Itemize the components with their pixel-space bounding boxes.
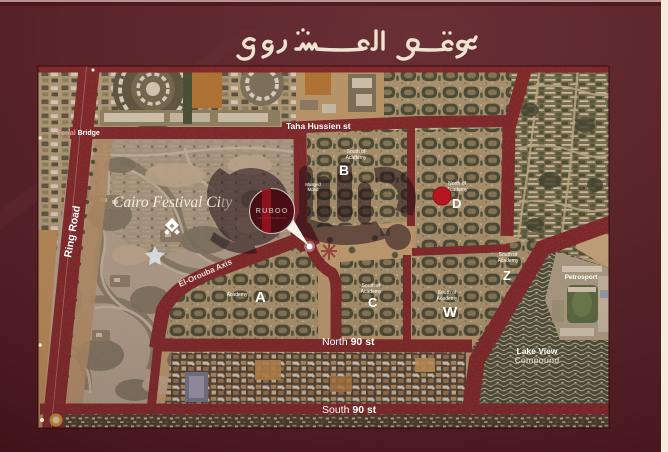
svg-text:RUBOO: RUBOO bbox=[256, 206, 289, 215]
svg-text:Cairo Festival City: Cairo Festival City bbox=[113, 194, 232, 211]
svg-text:DEVELOPMENTS: DEVELOPMENTS bbox=[257, 216, 286, 220]
svg-text:W: W bbox=[443, 304, 458, 321]
svg-text:Petrosport: Petrosport bbox=[565, 274, 599, 281]
svg-text:Ferial Bridge: Ferial Bridge bbox=[57, 130, 100, 137]
svg-text:B: B bbox=[339, 162, 349, 178]
svg-text:D: D bbox=[452, 196, 461, 211]
svg-text:North 90 st: North 90 st bbox=[322, 336, 375, 348]
svg-text:Academy: Academy bbox=[498, 258, 519, 264]
svg-text:Academy: Academy bbox=[227, 292, 248, 298]
svg-text:Mohd: Mohd bbox=[308, 187, 320, 192]
svg-text:C: C bbox=[368, 295, 378, 310]
svg-text:Compound: Compound bbox=[515, 355, 560, 365]
svg-text:Z: Z bbox=[503, 268, 511, 283]
svg-text:Taha Hussien st: Taha Hussien st bbox=[286, 121, 351, 131]
svg-text:A: A bbox=[255, 289, 266, 306]
svg-text:Academy: Academy bbox=[346, 155, 367, 161]
svg-text:Academy: Academy bbox=[361, 289, 382, 295]
svg-text:Academy: Academy bbox=[437, 296, 458, 302]
svg-text:South 90 st: South 90 st bbox=[322, 404, 377, 416]
